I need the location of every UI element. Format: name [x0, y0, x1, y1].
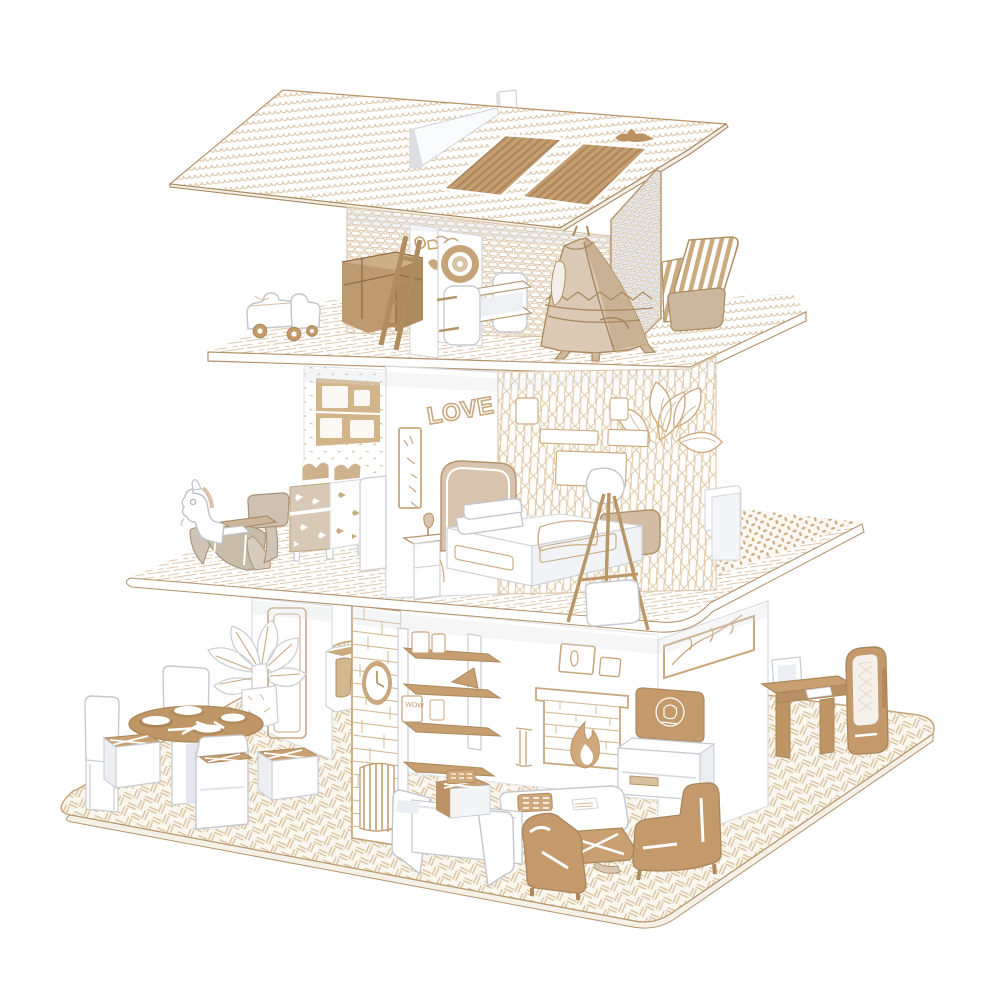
svg-text:WOW: WOW [405, 702, 424, 710]
